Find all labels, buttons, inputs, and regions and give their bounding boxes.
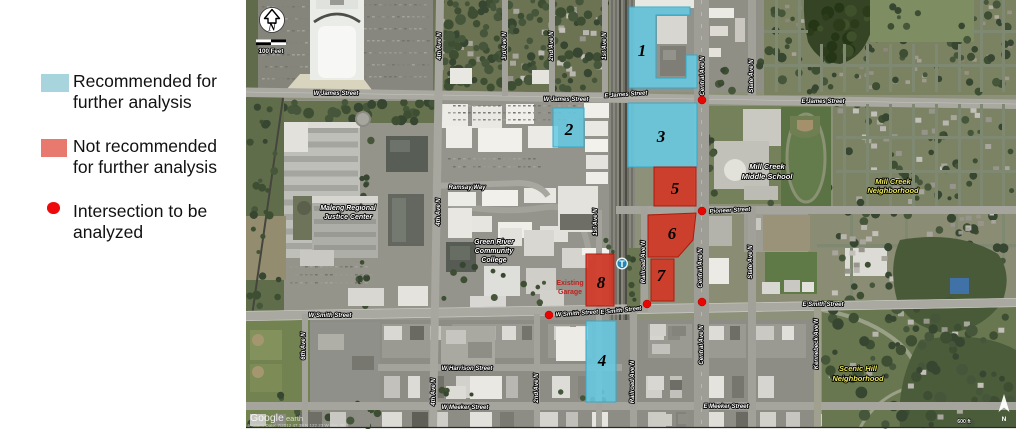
svg-text:W Meeker Street: W Meeker Street: [442, 405, 490, 411]
svg-text:Green River: Green River: [474, 239, 515, 246]
svg-text:E Smith Street: E Smith Street: [802, 302, 844, 308]
svg-text:E Meeker Street: E Meeker Street: [703, 404, 749, 410]
svg-text:4th Ave N: 4th Ave N: [437, 32, 443, 61]
svg-text:3rd Ave N: 3rd Ave N: [502, 31, 508, 59]
svg-text:Ramsay Way: Ramsay Way: [449, 185, 487, 191]
svg-text:Mill Creek: Mill Creek: [749, 162, 785, 171]
svg-text:2: 2: [564, 120, 574, 139]
svg-text:2nd Ave N: 2nd Ave N: [534, 373, 540, 404]
svg-text:Neighborhood: Neighborhood: [867, 186, 919, 195]
svg-text:earth: earth: [286, 414, 303, 423]
svg-text:N: N: [267, 23, 276, 34]
svg-text:Kennebeck Ave N: Kennebeck Ave N: [814, 318, 820, 369]
svg-text:4th Ave N: 4th Ave N: [431, 378, 437, 407]
svg-text:100 Feet: 100 Feet: [259, 48, 284, 55]
svg-text:Garage: Garage: [558, 289, 582, 296]
svg-text:State Ave N: State Ave N: [748, 245, 754, 279]
svg-text:Justice Center: Justice Center: [324, 214, 374, 221]
svg-text:4: 4: [597, 351, 607, 370]
svg-text:T: T: [619, 259, 625, 269]
svg-text:Neighborhood: Neighborhood: [832, 374, 884, 383]
svg-text:N: N: [1002, 416, 1007, 423]
svg-text:Central Ave N: Central Ave N: [699, 325, 705, 365]
svg-text:600 ft: 600 ft: [957, 419, 971, 425]
svg-text:Scenic Hill: Scenic Hill: [839, 364, 878, 373]
svg-text:Community: Community: [475, 248, 515, 255]
svg-text:College: College: [481, 257, 506, 264]
svg-text:E James Street: E James Street: [801, 99, 845, 105]
svg-text:State Ave N: State Ave N: [749, 59, 755, 93]
svg-text:W James Street: W James Street: [544, 97, 590, 103]
svg-text:Central Ave N: Central Ave N: [698, 248, 704, 288]
svg-text:Railroad Ave N: Railroad Ave N: [630, 360, 636, 403]
svg-text:6: 6: [668, 224, 677, 243]
svg-text:Mill Creek: Mill Creek: [875, 177, 911, 186]
svg-text:Existing: Existing: [556, 280, 583, 287]
svg-text:Railroad Ave N: Railroad Ave N: [641, 240, 647, 283]
svg-text:Middle School: Middle School: [742, 172, 794, 181]
svg-text:2nd Ave N: 2nd Ave N: [549, 31, 555, 62]
svg-text:6th Ave N: 6th Ave N: [301, 332, 307, 360]
svg-text:Central Ave N: Central Ave N: [700, 56, 706, 96]
svg-text:8: 8: [597, 273, 606, 292]
svg-text:1: 1: [638, 41, 647, 60]
svg-text:Maleng Regional: Maleng Regional: [320, 205, 377, 212]
svg-text:1st Ave N: 1st Ave N: [593, 208, 599, 236]
svg-text:5: 5: [671, 179, 680, 198]
svg-text:W James Street: W James Street: [314, 91, 360, 97]
svg-text:W Harrison Street: W Harrison Street: [442, 366, 494, 372]
svg-text:W Smith Street: W Smith Street: [309, 313, 353, 319]
svg-text:4th Ave N: 4th Ave N: [436, 198, 442, 227]
svg-text:1st Ave N: 1st Ave N: [602, 32, 608, 60]
svg-text:3: 3: [656, 127, 666, 146]
